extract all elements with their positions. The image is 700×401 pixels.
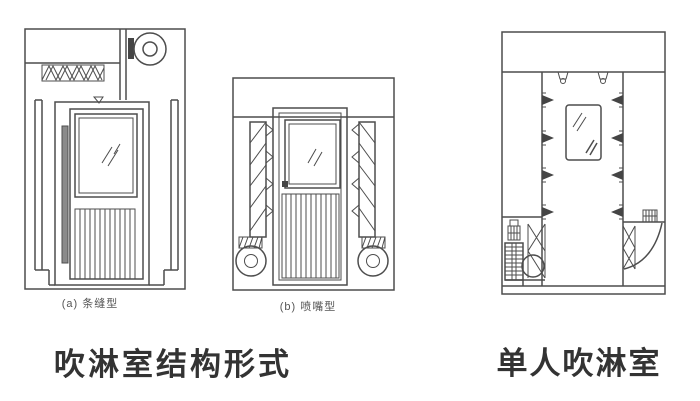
caption-structure-forms: 吹淋室结构形式 <box>42 339 304 384</box>
ceiling-nozzle-icons <box>558 72 608 84</box>
intake-filter-hatch <box>42 65 104 81</box>
nozzle-triangle-icons <box>266 124 359 217</box>
fan-icon <box>128 33 166 65</box>
fan-icons <box>236 237 388 276</box>
diagram-slot-type <box>22 26 192 316</box>
label-nozzle-type: (b) 喷嘴型 <box>256 298 360 314</box>
cabinet-outline <box>502 32 665 294</box>
nozzle-columns <box>250 122 375 237</box>
hepa-filter-hatch <box>505 243 523 280</box>
figure-canvas: (a) 条缝型 (b) 喷嘴型 吹淋室结构形式 单人吹淋室 <box>0 0 700 401</box>
glass-slash-marks <box>573 113 586 131</box>
door-latch <box>282 181 288 187</box>
label-slot-type: (a) 条缝型 <box>38 295 142 311</box>
slot-grille <box>75 209 135 279</box>
wall-nozzle-icons <box>542 93 623 219</box>
slot-grille <box>282 194 339 278</box>
glass-slash-marks <box>102 144 120 166</box>
caption-single-person: 单人吹淋室 <box>478 338 680 383</box>
return-duct-curve <box>623 223 662 269</box>
diagram-nozzle-type <box>226 73 398 323</box>
glass-slash-marks <box>308 149 322 166</box>
door-window <box>566 105 601 160</box>
diagram-single-person <box>495 26 670 311</box>
